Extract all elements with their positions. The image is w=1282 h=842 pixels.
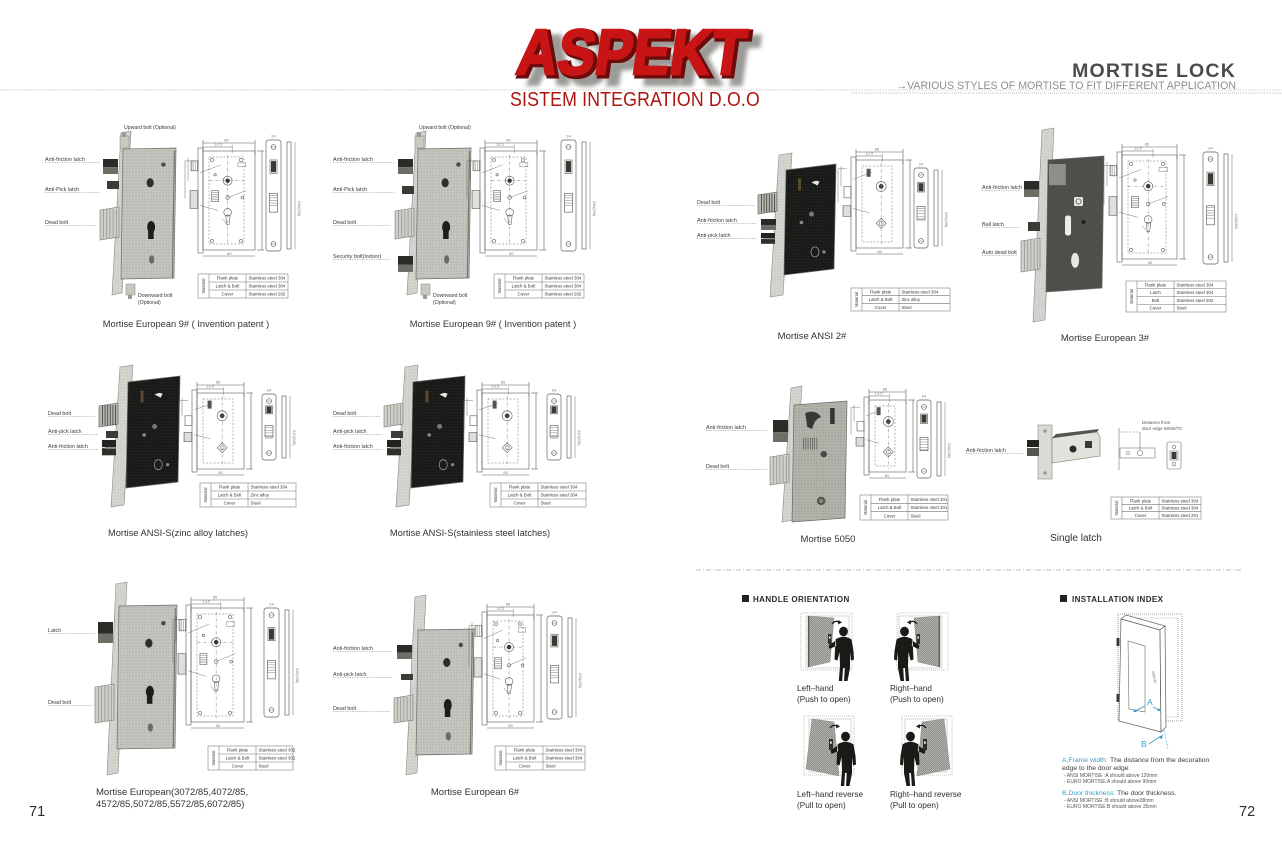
svg-text:85: 85 [224, 138, 229, 143]
svg-text:The distance from the decorati: The distance from the decoration [1110, 757, 1210, 764]
svg-text:Anti-friction latch: Anti-friction latch [982, 185, 1022, 191]
svg-text:60: 60 [508, 723, 513, 728]
svg-text:→VARIOUS STYLES OF MORTISE TO: →VARIOUS STYLES OF MORTISE TO FIT DIFFER… [897, 80, 1236, 92]
svg-text:240(238): 240(238) [1234, 214, 1238, 230]
svg-text:A: A [1147, 697, 1153, 707]
svg-text:Anti-pick latch: Anti-pick latch [48, 429, 82, 435]
svg-text:Bolt: Bolt [1152, 298, 1160, 303]
svg-text:Dead bolt: Dead bolt [45, 220, 69, 226]
svg-text:13.5: 13.5 [1134, 146, 1143, 151]
svg-text:Stainless steel 201: Stainless steel 201 [911, 497, 948, 502]
svg-text:(Pull to open): (Pull to open) [890, 801, 939, 810]
svg-text:Anti-friction latch: Anti-friction latch [966, 448, 1006, 454]
svg-text:60: 60 [509, 251, 514, 256]
svg-text:24: 24 [922, 394, 927, 399]
svg-text:Dead bolt: Dead bolt [333, 220, 357, 226]
svg-text:Mortise European 9# ( Inventio: Mortise European 9# ( Invention patent ) [103, 319, 269, 329]
svg-text:Flank plate: Flank plate [1145, 282, 1167, 287]
svg-text:24: 24 [566, 134, 571, 139]
svg-text:Steel: Steel [251, 501, 261, 506]
svg-text:Material: Material [863, 500, 868, 515]
svg-text:Cover: Cover [519, 764, 531, 769]
svg-text:Mortise European(3072/85,4072/: Mortise European(3072/85,4072/85, [96, 787, 248, 798]
svg-text:240(238): 240(238) [947, 443, 951, 459]
svg-text:Stainless steel 304: Stainless steel 304 [541, 485, 578, 490]
svg-text:Dead bolt: Dead bolt [48, 411, 72, 417]
svg-text:Downward bolt: Downward bolt [433, 293, 468, 299]
svg-text:Cover: Cover [875, 305, 887, 310]
svg-text:Mortise ANSI-S(stainless steel: Mortise ANSI-S(stainless steel latches) [390, 528, 550, 538]
svg-text:240(238): 240(238) [292, 430, 296, 446]
svg-text:Cover: Cover [1135, 513, 1147, 518]
svg-text:Downward bolt: Downward bolt [138, 293, 173, 299]
svg-text:Stainless steel 304: Stainless steel 304 [902, 289, 939, 294]
svg-text:Flank plate: Flank plate [870, 289, 892, 294]
svg-text:(Optional): (Optional) [433, 300, 456, 306]
svg-text:MORTISE LOCK: MORTISE LOCK [1072, 60, 1236, 82]
svg-text:60: 60 [216, 723, 221, 728]
svg-text:240(238): 240(238) [577, 430, 581, 446]
svg-text:24: 24 [271, 134, 276, 139]
svg-text:(Push to open): (Push to open) [797, 695, 851, 704]
svg-text:Latch & Bolt: Latch & Bolt [226, 756, 250, 761]
svg-text:Latch & Bolt: Latch & Bolt [216, 284, 240, 289]
svg-text:Steel: Steel [911, 513, 921, 518]
svg-text:13.5: 13.5 [206, 384, 215, 389]
svg-text:Flank plate: Flank plate [219, 485, 241, 490]
svg-text:Latch & Bolt: Latch & Bolt [512, 284, 536, 289]
svg-text:Mortise 5050: Mortise 5050 [801, 534, 856, 545]
svg-text:Anti-Pick latch: Anti-Pick latch [45, 187, 79, 193]
svg-text:Zinc alloy: Zinc alloy [902, 297, 921, 302]
svg-text:Steel: Steel [1177, 306, 1187, 311]
svg-text:Left–hand reverse: Left–hand reverse [797, 790, 863, 799]
svg-text:Cover: Cover [222, 292, 234, 297]
svg-text:Upward bolt (Optional): Upward bolt (Optional) [419, 125, 471, 131]
svg-text:85: 85 [875, 147, 880, 152]
svg-text:240(238): 240(238) [297, 201, 301, 217]
svg-text:85: 85 [216, 380, 221, 385]
svg-text:Stainless steel 302: Stainless steel 302 [259, 748, 296, 753]
svg-text:Cover: Cover [514, 501, 526, 506]
svg-text:HANDLE ORIENTATION: HANDLE ORIENTATION [753, 595, 850, 604]
svg-text:13.5: 13.5 [202, 599, 211, 604]
svg-text:Stainless steel 304: Stainless steel 304 [249, 284, 286, 289]
svg-text:ASPEKT: ASPEKT [513, 16, 751, 88]
svg-text:Material: Material [498, 750, 503, 765]
svg-text:Mortise ANSI 2#: Mortise ANSI 2# [778, 331, 847, 342]
svg-text:Stainless steel 304: Stainless steel 304 [1162, 498, 1199, 503]
svg-text:A,Frame width:: A,Frame width: [1062, 757, 1108, 764]
svg-text:60: 60 [877, 249, 882, 254]
svg-text:13.5: 13.5 [491, 384, 500, 389]
svg-text:85: 85 [501, 380, 506, 385]
svg-text:85: 85 [506, 138, 511, 143]
svg-text:(Optional): (Optional) [138, 300, 161, 306]
svg-text:Mortise ANSI-S(zinc alloy latc: Mortise ANSI-S(zinc alloy latches) [108, 528, 248, 538]
svg-text:Flank plate: Flank plate [1130, 498, 1152, 503]
svg-text:Left–hand: Left–hand [797, 684, 834, 693]
svg-text:Stainless steel 304: Stainless steel 304 [251, 485, 288, 490]
svg-text:13.5: 13.5 [496, 142, 505, 147]
svg-text:Stainless steel 202: Stainless steel 202 [1177, 298, 1214, 303]
svg-text:Material: Material [211, 750, 216, 765]
svg-text:Cover: Cover [884, 513, 896, 518]
svg-text:Flank plate: Flank plate [227, 748, 249, 753]
svg-text:240(238): 240(238) [944, 212, 948, 228]
svg-text:Mortise European 9# ( Inventio: Mortise European 9# ( Invention patent ) [410, 319, 576, 329]
svg-text:Stainless steel 304: Stainless steel 304 [545, 276, 582, 281]
svg-text:The door thickness.: The door thickness. [1117, 790, 1176, 797]
svg-text:Anti-pick latch: Anti-pick latch [697, 233, 731, 239]
svg-text:85: 85 [1145, 142, 1150, 147]
svg-text:Stainless steel 304: Stainless steel 304 [541, 493, 578, 498]
svg-text:Anti-pick latch: Anti-pick latch [333, 672, 367, 678]
svg-text:60: 60 [1148, 260, 1153, 265]
svg-text:60: 60 [885, 473, 890, 478]
svg-text:Stainless steel 304: Stainless steel 304 [249, 276, 286, 281]
svg-text:Steel: Steel [541, 501, 551, 506]
svg-text:24: 24 [267, 388, 272, 393]
svg-text:Latch & Bolt: Latch & Bolt [508, 493, 532, 498]
svg-text:Cover: Cover [1150, 306, 1162, 311]
svg-text:240(238): 240(238) [592, 201, 596, 217]
svg-text:Anti-friction latch: Anti-friction latch [333, 646, 373, 652]
svg-text:Mortise European 6#: Mortise European 6# [431, 787, 520, 798]
svg-text:60: 60 [503, 470, 508, 475]
svg-text:Steel: Steel [259, 764, 269, 769]
svg-text:Stainless steel 202: Stainless steel 202 [249, 292, 286, 297]
svg-text:13.5: 13.5 [865, 151, 874, 156]
svg-text:71: 71 [29, 804, 45, 820]
svg-text:Latch & Bolt: Latch & Bolt [1129, 506, 1153, 511]
svg-text:Stainless steel 304: Stainless steel 304 [1162, 506, 1199, 511]
svg-text:Mortise European 3#: Mortise European 3# [1061, 333, 1150, 344]
svg-text:Cover: Cover [232, 764, 244, 769]
svg-text:240(238): 240(238) [578, 673, 582, 689]
svg-text:72: 72 [1239, 804, 1255, 820]
svg-text:Upward bolt (Optional): Upward bolt (Optional) [124, 125, 176, 131]
svg-text:Stainless steel 302: Stainless steel 302 [259, 756, 296, 761]
svg-text:Material: Material [854, 292, 859, 307]
svg-text:Dead bolt: Dead bolt [333, 706, 357, 712]
svg-text:Anti-friction latch: Anti-friction latch [706, 425, 746, 431]
svg-text:door edge 60/60/70: door edge 60/60/70 [1142, 426, 1182, 431]
svg-text:(Pull to open): (Pull to open) [797, 801, 846, 810]
svg-text:Dead bolt: Dead bolt [333, 411, 357, 417]
svg-text:85: 85 [883, 387, 888, 392]
svg-text:Anti-friction latch: Anti-friction latch [45, 157, 85, 163]
svg-text:Dead bolt: Dead bolt [706, 464, 730, 470]
svg-text:Flank plate: Flank plate [509, 485, 531, 490]
svg-text:Material: Material [493, 487, 498, 502]
svg-text:edge to the door edge: edge to the door edge [1062, 765, 1129, 772]
svg-text:Flank plate: Flank plate [514, 748, 536, 753]
svg-text:Cover: Cover [224, 501, 236, 506]
svg-text:24: 24 [552, 610, 557, 615]
svg-text:Stainless steel 304: Stainless steel 304 [1177, 290, 1214, 295]
svg-text:Stainless steel 201: Stainless steel 201 [1162, 513, 1199, 518]
svg-text:13.5: 13.5 [214, 142, 223, 147]
svg-text:Anti-friction latch: Anti-friction latch [333, 157, 373, 163]
svg-text:B: B [1141, 739, 1147, 749]
svg-text:Latch & Bolt: Latch & Bolt [878, 505, 902, 510]
svg-text:- EURO MORTISE:B should above: - EURO MORTISE:B should above 35mm [1064, 804, 1157, 810]
svg-text:Single latch: Single latch [1050, 533, 1102, 544]
svg-text:Anti-Pick latch: Anti-Pick latch [333, 187, 367, 193]
svg-text:Anti-friction latch: Anti-friction latch [333, 444, 373, 450]
svg-text:13.5: 13.5 [496, 606, 505, 611]
svg-text:Right–hand: Right–hand [890, 684, 932, 693]
svg-text:(Push to open): (Push to open) [890, 695, 944, 704]
svg-text:4572/85,5072/85,5572/85,6072/8: 4572/85,5072/85,5572/85,6072/85) [96, 799, 244, 810]
svg-text:Security bolt(indoor): Security bolt(indoor) [333, 254, 381, 260]
svg-text:Stainless steel 304: Stainless steel 304 [545, 284, 582, 289]
svg-text:13.5: 13.5 [875, 391, 884, 396]
svg-text:Right–hand reverse: Right–hand reverse [890, 790, 962, 799]
svg-text:Latch: Latch [1150, 290, 1161, 295]
svg-text:Dead bolt: Dead bolt [48, 700, 72, 706]
svg-text:Anti-friction latch: Anti-friction latch [697, 218, 737, 224]
svg-text:B,Door thickness:: B,Door thickness: [1062, 790, 1115, 797]
svg-text:Stainless steel 201: Stainless steel 201 [911, 505, 948, 510]
svg-text:Steel: Steel [902, 305, 912, 310]
svg-text:Material: Material [1114, 500, 1119, 515]
svg-text:Material: Material [201, 278, 206, 293]
svg-text:- EURO MORTISE:A should above: - EURO MORTISE:A should above 90mm [1064, 779, 1156, 785]
svg-text:24: 24 [269, 602, 274, 607]
svg-text:Ball latch: Ball latch [982, 222, 1004, 228]
svg-text:Latch & Bolt: Latch & Bolt [513, 756, 537, 761]
svg-text:Dead bolt: Dead bolt [697, 200, 721, 206]
svg-text:240(238): 240(238) [295, 668, 299, 684]
svg-text:24: 24 [919, 162, 924, 167]
svg-text:Auto dead bolt: Auto dead bolt [982, 250, 1017, 256]
svg-text:Stainless steel 304: Stainless steel 304 [546, 756, 583, 761]
svg-text:Material: Material [497, 278, 502, 293]
svg-text:24: 24 [552, 388, 557, 393]
svg-text:Steel: Steel [546, 764, 556, 769]
svg-text:Latch & Bolt: Latch & Bolt [218, 493, 242, 498]
svg-text:85: 85 [506, 602, 511, 607]
svg-text:85: 85 [213, 595, 218, 600]
svg-text:Anti-friction latch: Anti-friction latch [48, 444, 88, 450]
svg-text:Stainless steel 202: Stainless steel 202 [545, 292, 582, 297]
svg-text:Cover: Cover [518, 292, 530, 297]
svg-text:INSTALLATION INDEX: INSTALLATION INDEX [1072, 595, 1164, 604]
svg-text:Stainless steel 304: Stainless steel 304 [1177, 282, 1214, 287]
svg-text:Latch: Latch [48, 628, 61, 634]
svg-text:Flank plate: Flank plate [513, 276, 535, 281]
svg-text:Material: Material [203, 487, 208, 502]
svg-text:Distance from: Distance from [1142, 420, 1171, 425]
svg-text:Latch & Bolt: Latch & Bolt [869, 297, 893, 302]
svg-text:Zinc alloy: Zinc alloy [251, 493, 270, 498]
svg-text:24: 24 [1208, 146, 1213, 151]
svg-text:SISTEM INTEGRATION D.O.O: SISTEM INTEGRATION D.O.O [510, 88, 760, 111]
svg-text:Material: Material [1129, 289, 1134, 304]
svg-text:Anti-pick latch: Anti-pick latch [333, 429, 367, 435]
svg-text:Flank plate: Flank plate [217, 276, 239, 281]
svg-text:60: 60 [218, 470, 223, 475]
svg-text:60: 60 [227, 251, 232, 256]
svg-text:Flank plate: Flank plate [879, 497, 901, 502]
svg-text:Stainless steel 304: Stainless steel 304 [546, 748, 583, 753]
